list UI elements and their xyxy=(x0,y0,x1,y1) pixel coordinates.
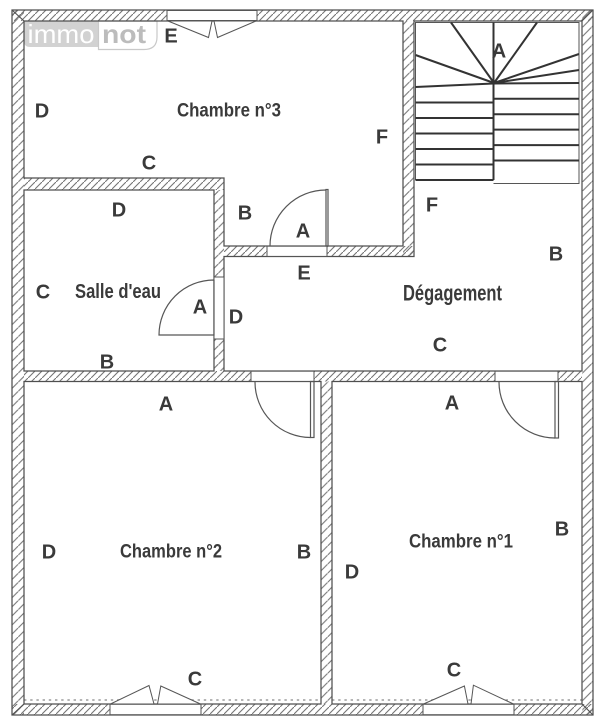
svg-text:not: not xyxy=(102,19,146,49)
svg-text:C: C xyxy=(447,659,461,681)
svg-text:Chambre n°2: Chambre n°2 xyxy=(120,542,222,563)
svg-text:Chambre n°3: Chambre n°3 xyxy=(177,100,281,122)
svg-text:E: E xyxy=(297,262,310,284)
svg-text:D: D xyxy=(112,199,126,221)
svg-text:D: D xyxy=(229,306,243,328)
svg-text:C: C xyxy=(433,334,447,356)
svg-text:Dégagement: Dégagement xyxy=(403,281,502,306)
svg-text:F: F xyxy=(376,126,388,148)
svg-text:C: C xyxy=(142,152,156,174)
svg-text:B: B xyxy=(100,351,114,373)
svg-text:E: E xyxy=(164,25,177,47)
svg-text:A: A xyxy=(159,393,173,415)
svg-text:A: A xyxy=(296,220,310,242)
svg-text:Salle d'eau: Salle d'eau xyxy=(75,281,161,303)
svg-text:D: D xyxy=(42,541,56,563)
svg-text:B: B xyxy=(297,541,311,563)
svg-text:D: D xyxy=(345,561,359,583)
svg-text:immo: immo xyxy=(28,19,95,49)
svg-text:D: D xyxy=(35,100,49,122)
svg-text:A: A xyxy=(445,392,459,414)
svg-text:A: A xyxy=(492,40,506,62)
svg-text:C: C xyxy=(36,281,50,303)
svg-text:B: B xyxy=(549,243,563,265)
svg-text:F: F xyxy=(426,194,438,216)
svg-text:B: B xyxy=(555,518,569,540)
svg-text:B: B xyxy=(238,202,252,224)
svg-text:Chambre n°1: Chambre n°1 xyxy=(409,531,513,553)
svg-text:A: A xyxy=(193,296,207,318)
svg-text:C: C xyxy=(188,668,202,690)
